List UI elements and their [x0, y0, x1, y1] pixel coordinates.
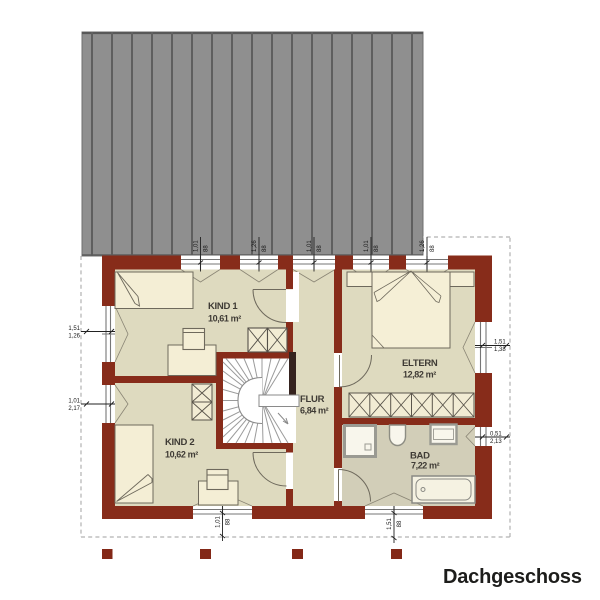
svg-text:10,62 m²: 10,62 m²	[165, 450, 198, 460]
svg-text:1,01: 1,01	[68, 399, 80, 405]
svg-text:1,01: 1,01	[194, 240, 200, 252]
svg-text:KIND 2: KIND 2	[165, 437, 194, 448]
svg-text:2,13: 2,13	[490, 439, 502, 445]
svg-text:1,51: 1,51	[387, 518, 393, 530]
svg-text:88: 88	[226, 518, 232, 525]
svg-text:1,01: 1,01	[216, 516, 222, 528]
svg-text:KIND 1: KIND 1	[208, 301, 238, 312]
svg-text:1,01: 1,01	[307, 240, 313, 252]
svg-text:1,51: 1,51	[494, 340, 506, 346]
svg-text:88: 88	[397, 520, 403, 527]
svg-text:88: 88	[262, 245, 268, 252]
svg-text:10,61 m²: 10,61 m²	[208, 314, 241, 324]
svg-text:88: 88	[430, 245, 436, 252]
svg-text:1,01: 1,01	[364, 240, 370, 252]
svg-text:FLUR: FLUR	[300, 394, 325, 405]
svg-text:1,26: 1,26	[252, 240, 258, 252]
svg-text:0,51: 0,51	[490, 432, 502, 438]
svg-text:1,26: 1,26	[68, 334, 80, 340]
svg-text:88: 88	[317, 245, 323, 252]
svg-text:Dachgeschoss: Dachgeschoss	[443, 566, 582, 588]
svg-text:88: 88	[374, 245, 380, 252]
svg-text:1,38: 1,38	[494, 347, 506, 353]
svg-text:1,26: 1,26	[420, 240, 426, 252]
svg-text:2,17: 2,17	[68, 406, 80, 412]
svg-text:12,82 m²: 12,82 m²	[403, 370, 436, 380]
svg-text:1,51: 1,51	[68, 326, 80, 332]
svg-text:ELTERN: ELTERN	[402, 358, 438, 369]
svg-text:7,22 m²: 7,22 m²	[411, 461, 440, 471]
svg-text:6,84 m²: 6,84 m²	[300, 406, 329, 416]
svg-text:88: 88	[204, 245, 210, 252]
